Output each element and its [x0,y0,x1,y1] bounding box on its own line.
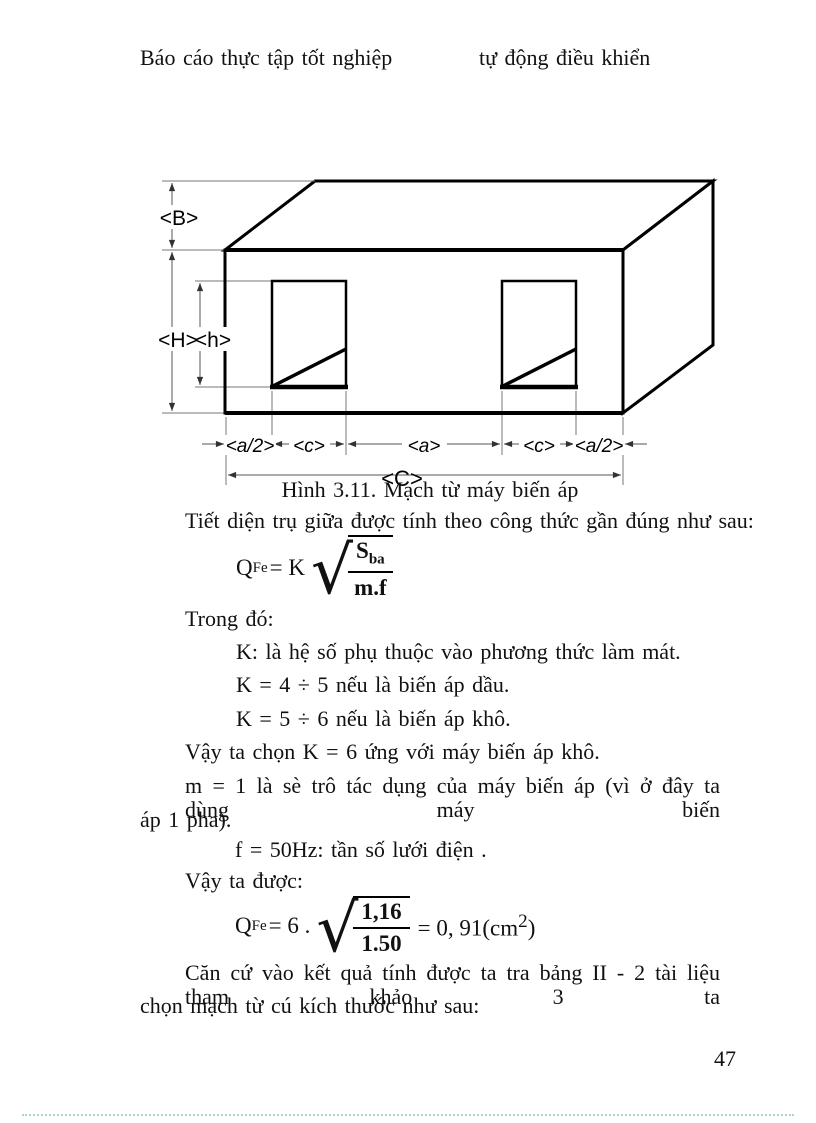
para-where: Trong đó: [185,607,274,631]
formula-qfe-general: QFe = K √ Sba m.f [236,537,393,599]
formula-den: m.f [348,573,393,601]
formula2-den: 1.50 [355,929,407,957]
formula-q: Q [236,555,253,581]
header-right-text: tự động điều khiển [479,46,650,70]
dim-label-c-right: <c> [523,436,555,457]
para-f-line: f = 50Hz: tần số lưới điện . [235,838,487,862]
formula2-q: Q [235,913,252,939]
para-intro: Tiết diện trụ giữa được tính theo công t… [185,509,754,533]
formula2-eq: = 6 . [269,913,311,939]
figure-caption: Hình 3.11. Mạch từ máy biến áp [150,477,710,503]
para-k-oil: K = 4 ÷ 5 nếu là biến áp dầu. [236,673,509,697]
dim-label-H: <H> [158,329,198,352]
footer-dotted-line [22,1114,794,1116]
formula-eq: = K [270,555,305,581]
core-window-left [270,281,348,387]
para-k-choice: Vậy ta chọn K = 6 ứng với máy biến áp kh… [185,740,600,764]
formula2-fraction: 1,16 1.50 [353,896,409,957]
para-conclusion-line2: chọn mạch từ cú kích thước như sau: [140,994,479,1018]
page-number: 47 [714,1046,736,1072]
para-k-dry: K = 5 ÷ 6 nếu là biến áp khô. [236,707,511,731]
dim-label-a: <a> [408,436,441,457]
dim-label-c-left: <c> [293,436,325,457]
core-window-right [500,281,578,387]
formula2-num: 1,16 [353,898,409,929]
formula-num: S [356,538,369,563]
header-left-text: Báo cáo thực tập tốt nghiệp [140,46,392,70]
formula2-q-sub: Fe [252,918,267,935]
document-page: Báo cáo thực tập tốt nghiệp tự động điều… [0,0,816,1123]
formula2-result-sup: 2 [518,911,528,932]
formula-fraction: Sba m.f [348,535,393,600]
para-m-line1: m = 1 là sè trô tác dụng của máy biến áp… [185,774,720,822]
para-k-desc: K: là hệ số phụ thuộc vào phương thức là… [236,640,681,664]
transformer-core-diagram: <B> <H> <h> <a/2> <c> <a> <c> <a/2> <C> [140,155,760,500]
para-result-intro: Vậy ta được: [185,869,303,893]
dim-label-a-half-right: <a/2> [575,436,624,457]
dim-label-h: <h> [195,329,231,352]
formula-qfe-value: QFe = 6 . √ 1,16 1.50 = 0, 91(cm2) [235,897,535,955]
dim-label-B: <B> [160,207,199,230]
dim-label-a-half-left: <a/2> [226,436,275,457]
formula2-result: = 0, 91(cm2) [418,911,536,942]
formula2-result-text: = 0, 91(cm [418,915,518,940]
para-m-line2: áp 1 pha). [140,808,231,832]
formula-num-sub: ba [369,552,385,568]
formula2-result-end: ) [528,915,536,940]
formula-q-sub: Fe [253,560,268,577]
